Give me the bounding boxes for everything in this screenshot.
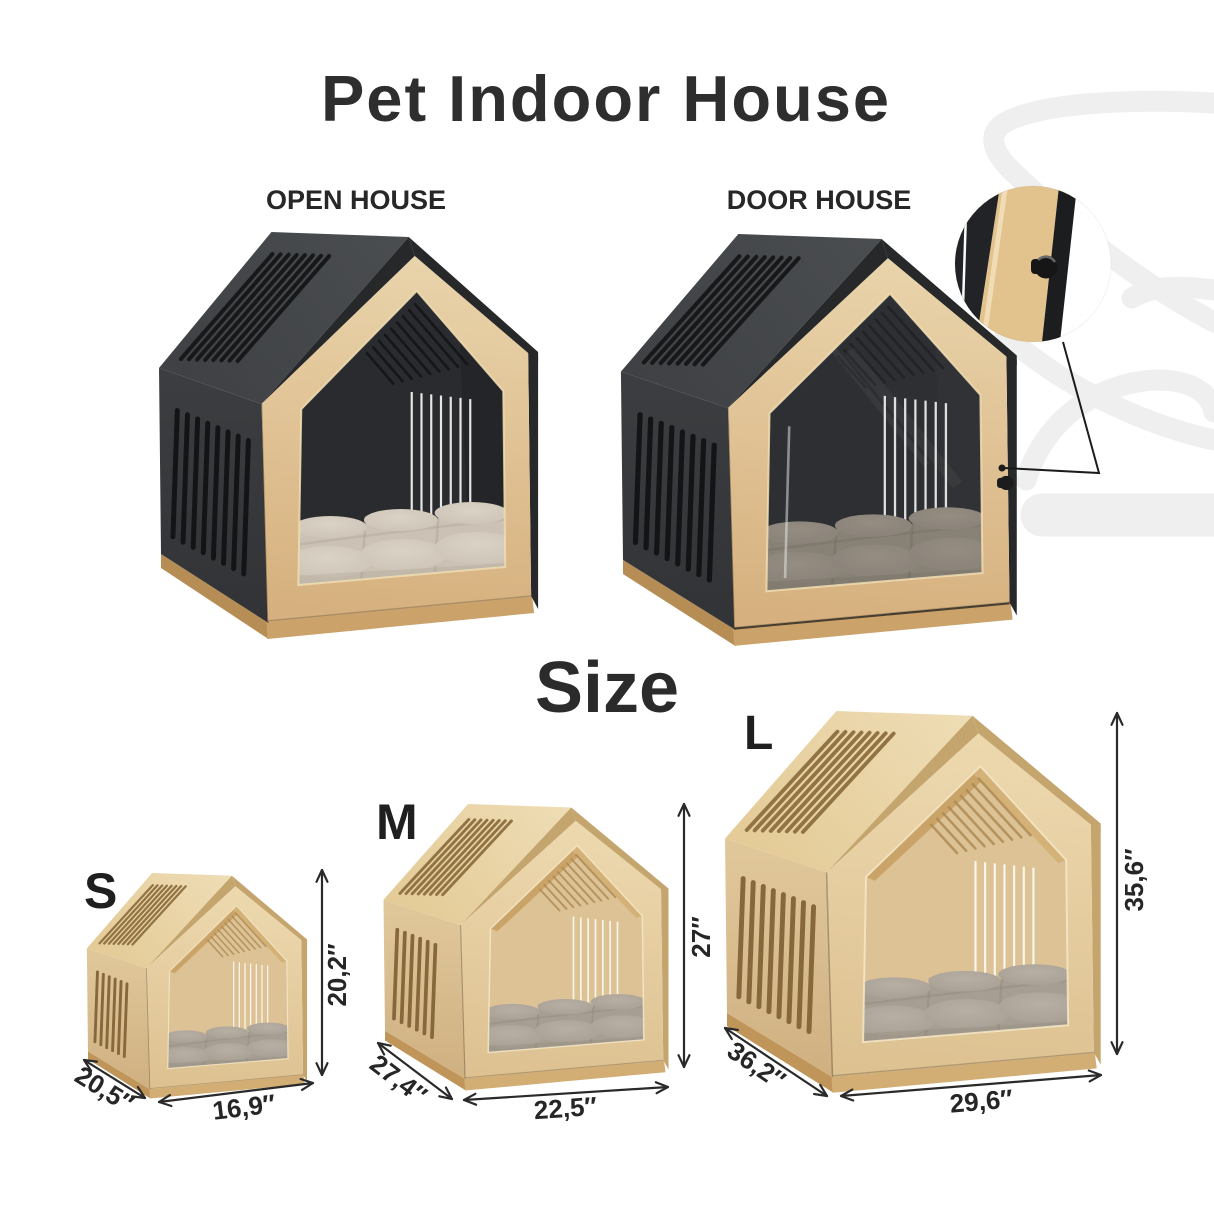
- svg-text:M: M: [376, 794, 418, 850]
- svg-text:DOOR HOUSE: DOOR HOUSE: [727, 185, 912, 215]
- svg-text:29,6″: 29,6″: [948, 1083, 1013, 1118]
- svg-text:20,2″: 20,2″: [322, 943, 352, 1006]
- svg-text:Pet Indoor House: Pet Indoor House: [321, 62, 891, 135]
- svg-text:L: L: [744, 707, 773, 760]
- svg-text:Size: Size: [535, 648, 679, 728]
- svg-text:22,5″: 22,5″: [533, 1091, 598, 1125]
- svg-text:27″: 27″: [686, 916, 716, 957]
- svg-text:35,6″: 35,6″: [1119, 848, 1149, 911]
- svg-text:S: S: [84, 863, 117, 919]
- svg-text:OPEN HOUSE: OPEN HOUSE: [266, 185, 446, 215]
